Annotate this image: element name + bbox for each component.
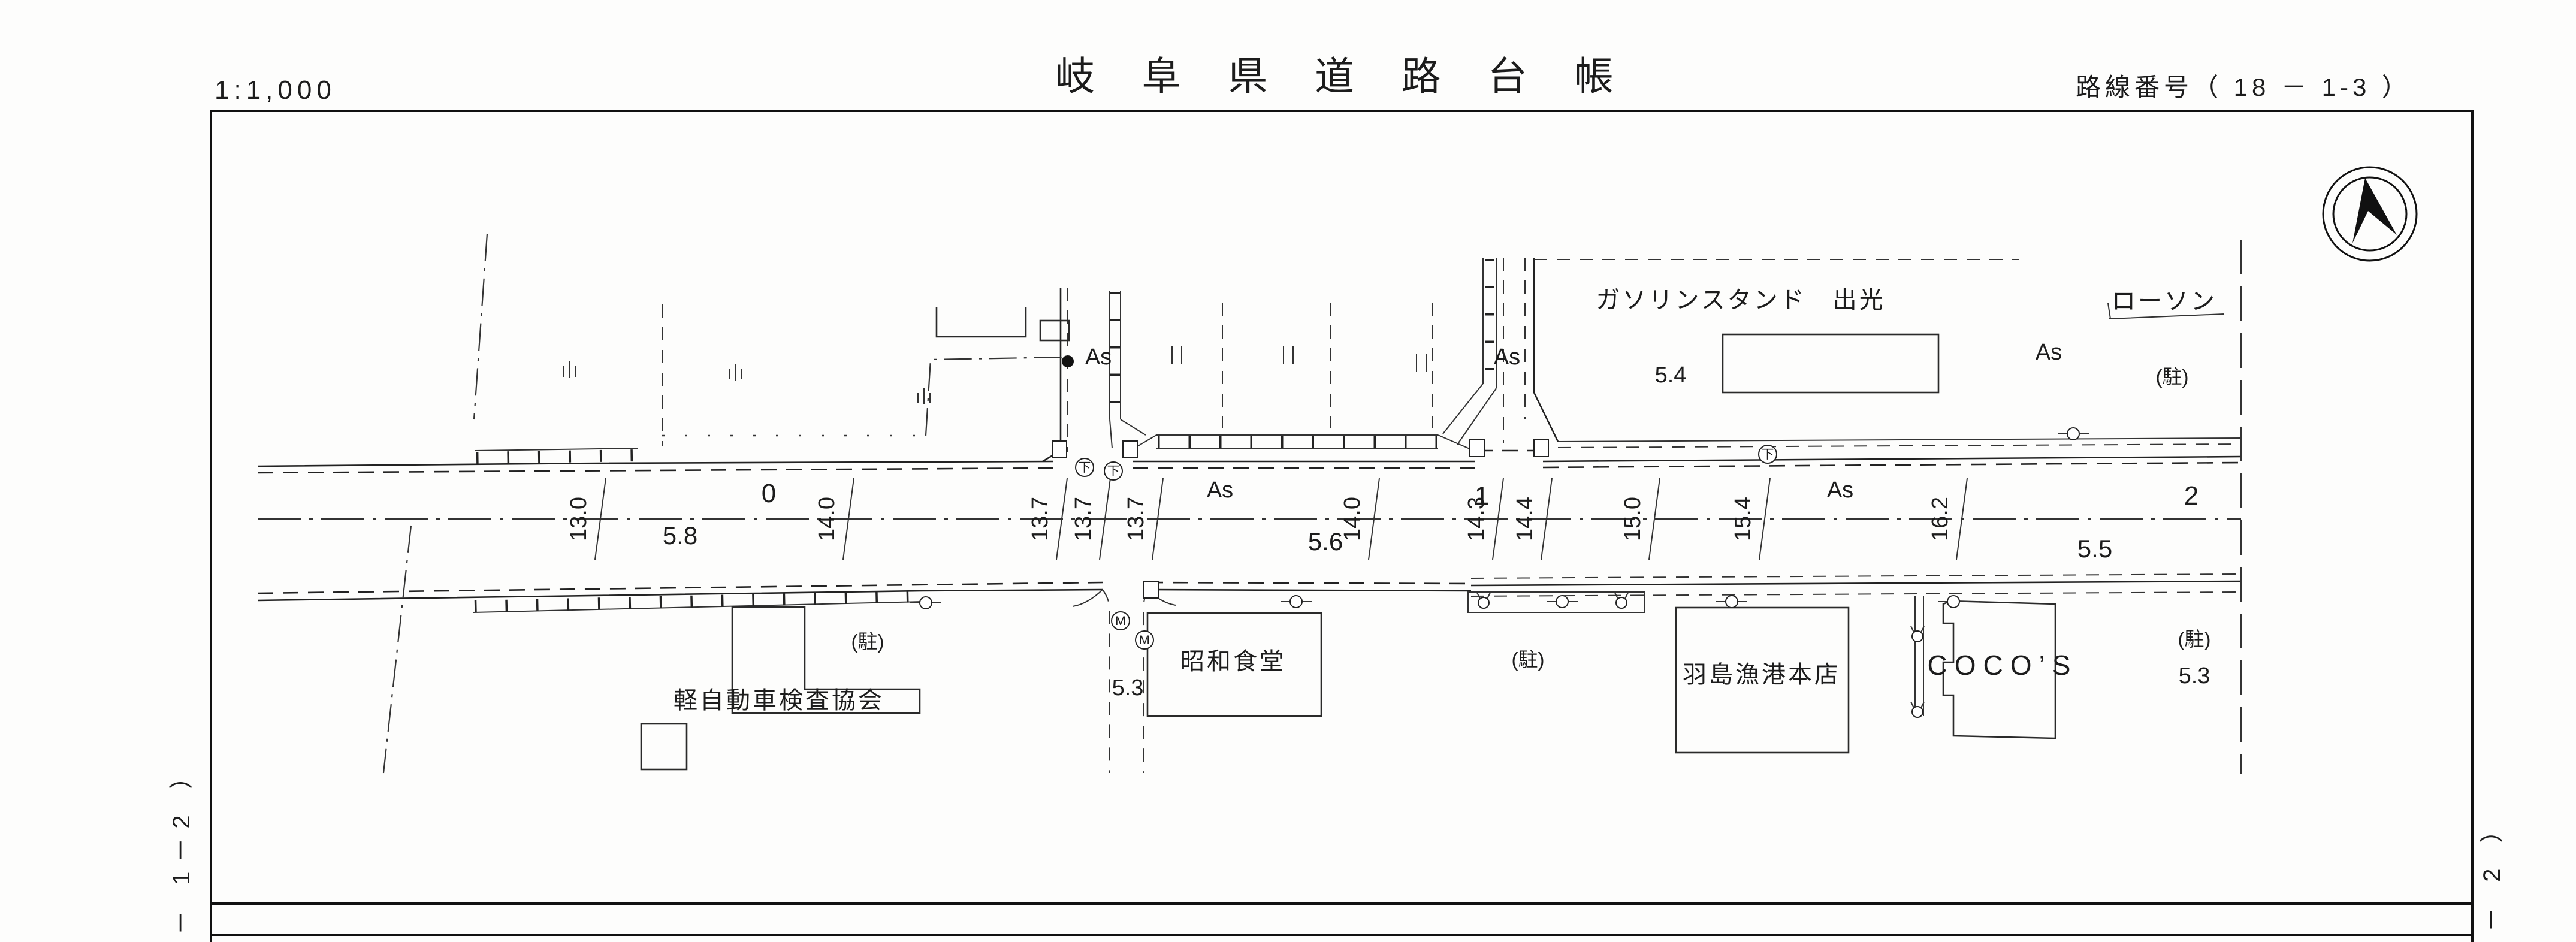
station-distance-label: 13.7: [1124, 497, 1149, 541]
label-lawson: ローソン: [2112, 288, 2217, 315]
label-idemitsu: ガソリンスタンド 出光: [1596, 287, 1885, 313]
light-icon: [910, 597, 941, 609]
marker-square-icon: [1052, 441, 1067, 458]
pavement-type-label: As: [1494, 345, 1520, 370]
marker-square-icon: [1123, 441, 1137, 458]
station-tick: [1956, 478, 1967, 560]
adjacent-sheet-left: － 1－2 ）: [168, 756, 195, 935]
svg-text:下: 下: [1107, 464, 1120, 478]
light-icon: [2058, 428, 2089, 440]
marker-square-icon: [1534, 440, 1548, 457]
marker-square-icon: [1144, 581, 1158, 598]
parcel-boundaries: [383, 234, 2241, 774]
adjacent-sheet-right: － 2 ）: [2479, 810, 2505, 932]
svg-text:M: M: [1115, 614, 1126, 628]
parking-label: (駐): [2178, 628, 2211, 650]
manhole-shita-icon: 下: [1104, 462, 1122, 480]
dimension-label: 5.3: [1112, 675, 1144, 701]
station-distance-label: 14.4: [1512, 497, 1538, 541]
manhole-shita-icon: 下: [1759, 445, 1777, 463]
station-distance-label: 13.0: [566, 497, 591, 541]
svg-text:M: M: [1139, 633, 1150, 647]
dimension-label: 5.3: [2179, 663, 2210, 689]
north-arrow-icon: [2323, 167, 2417, 261]
building-idemitsu-canopy: [1723, 334, 1938, 393]
station-distance-label: 14.0: [1340, 497, 1365, 541]
light-icon: [1281, 596, 1312, 608]
pavement-type-label: As: [1827, 478, 1853, 503]
parking-label: (駐): [851, 630, 884, 653]
manhole-m-icon: M: [1136, 631, 1153, 649]
point-dot-icon: [1062, 355, 1074, 367]
pavement-type-label: As: [1207, 478, 1233, 503]
annotation-labels-layer: 0125.85.65.5AsAsAsAsAs5.35.35.4(駐)(駐)(駐)…: [663, 340, 2211, 701]
page-title: 岐 阜 県 道 路 台 帳: [1055, 54, 1632, 98]
station-number-label: 1: [1475, 481, 1489, 511]
road-width-label: 5.6: [1308, 527, 1343, 555]
pole-icon: [1911, 702, 1924, 717]
parking-label: (駐): [2156, 366, 2189, 388]
road-width-label: 5.8: [663, 521, 697, 549]
station-number-label: 2: [2184, 481, 2198, 511]
light-icon: [1547, 596, 1578, 608]
marker-square-icon: [1470, 440, 1484, 457]
road-register-sheet: 1:1,000 岐 阜 県 道 路 台 帳 路線番号（ 18 － 1-3 ） －…: [0, 0, 2576, 942]
station-distance-label: 15.0: [1620, 497, 1645, 541]
building-u-shape: [937, 307, 1026, 337]
station-distance-label: 13.7: [1028, 497, 1053, 541]
pavement-type-label: As: [2036, 340, 2062, 365]
label-showa-shokudo: 昭和食堂: [1180, 648, 1286, 675]
svg-text:下: 下: [1079, 461, 1091, 475]
manhole-m-icon: M: [1112, 612, 1130, 630]
road-width-label: 5.5: [2077, 535, 2112, 563]
station-number-label: 0: [762, 479, 776, 508]
label-kei-jidosha: 軽自動車検査協会: [674, 687, 884, 714]
label-hashima-gyoko: 羽島漁港本店: [1683, 662, 1841, 688]
tick-pair-icon: [1172, 346, 1182, 364]
manhole-shita-icon: 下: [1076, 458, 1094, 476]
parking-label: (駐): [1512, 648, 1545, 671]
pavement-type-label: As: [1085, 345, 1112, 370]
tick-pair-icon: [1417, 354, 1426, 372]
svg-text:下: 下: [1762, 448, 1774, 461]
grass-icon: [563, 361, 575, 378]
pole-icon: [1911, 626, 1924, 642]
tick-pair-icon: [1284, 346, 1293, 364]
grass-icon: [730, 364, 742, 381]
station-distance-label: 14.0: [814, 497, 839, 541]
dimension-label: 5.4: [1655, 363, 1687, 388]
building-small-southwest: [641, 724, 687, 769]
scale-label: 1:1,000: [215, 76, 336, 105]
side-road-north-1: [1043, 288, 1146, 461]
station-distance-label: 16.2: [1928, 497, 1953, 541]
building-small-north: [1040, 321, 1069, 340]
pole-icon: [1477, 593, 1490, 608]
route-number: 路線番号（ 18 － 1-3 ）: [2076, 73, 2411, 101]
label-cocos: COCO’S: [1928, 650, 2078, 681]
light-icon: [1716, 596, 1747, 608]
station-distance-label: 13.7: [1071, 497, 1096, 541]
station-distance-label: 15.4: [1731, 497, 1756, 541]
